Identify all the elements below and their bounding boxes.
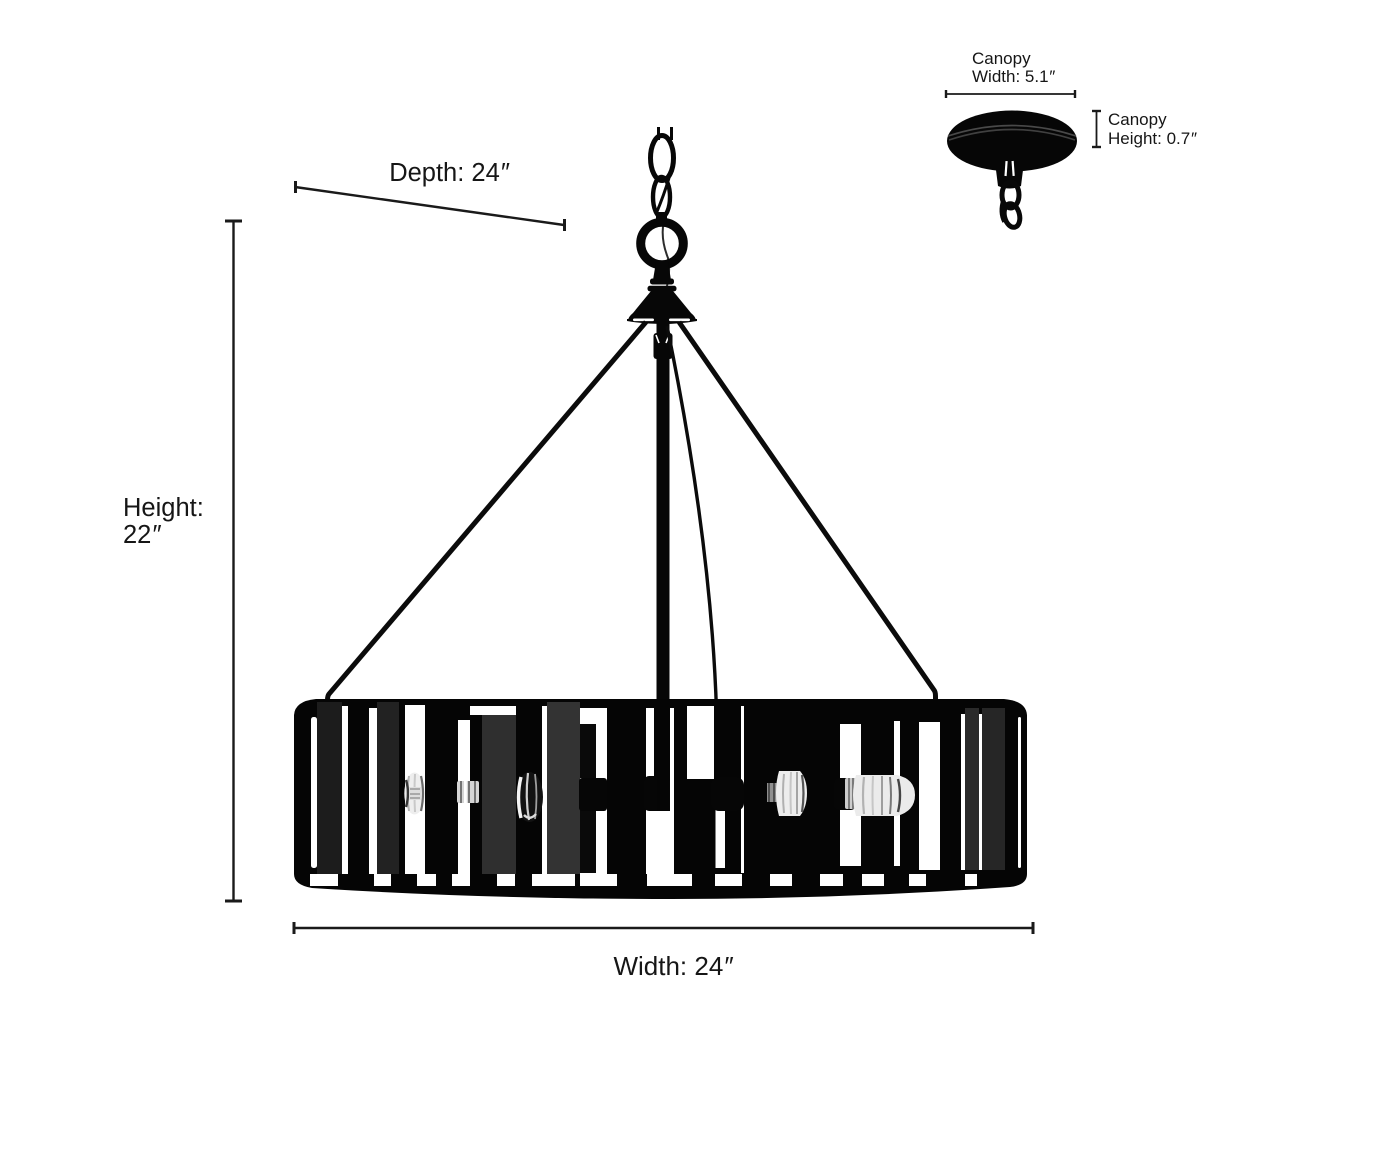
svg-text:Canopy: Canopy xyxy=(972,49,1031,68)
svg-text:Width: 5.1″: Width: 5.1″ xyxy=(972,67,1056,86)
svg-text:Width: 24″: Width: 24″ xyxy=(613,951,733,981)
svg-text:Height:: Height: xyxy=(123,494,204,522)
svg-text:22″: 22″ xyxy=(123,521,161,549)
svg-text:Depth: 24″: Depth: 24″ xyxy=(389,159,510,187)
svg-text:Canopy: Canopy xyxy=(1108,110,1167,129)
svg-text:Height: 0.7″: Height: 0.7″ xyxy=(1108,129,1197,148)
